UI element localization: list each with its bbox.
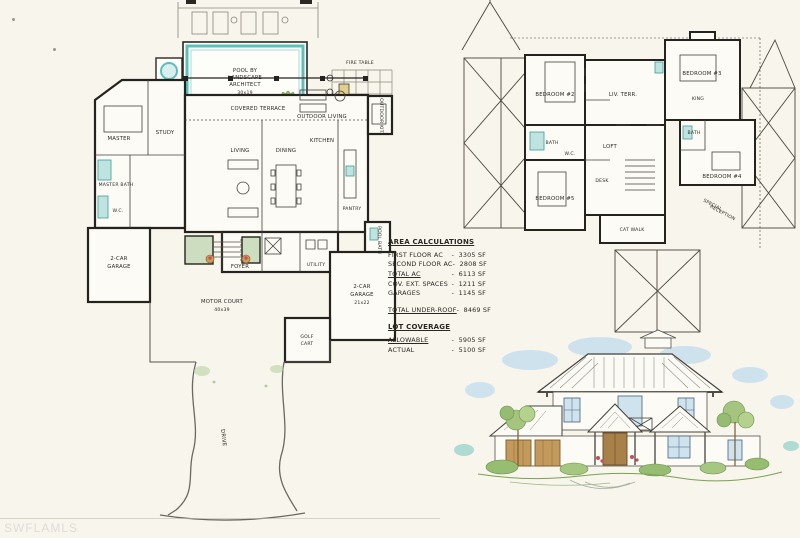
first-floor-plan: POOL BY LANDSCAPE ARCHITECT 30x19 SPA: [0, 0, 400, 538]
row-label: ALLOWABLE: [388, 336, 428, 344]
row-label: GARAGES: [388, 289, 420, 297]
row-label: COV. EXT. SPACES: [388, 280, 448, 288]
loft-label: LOFT: [603, 144, 617, 150]
master-bath-label: MASTER BATH: [99, 182, 134, 188]
king-label: KING: [692, 96, 704, 102]
cupola: [640, 330, 676, 348]
row-label: SECOND FLOOR AC: [388, 260, 453, 268]
wc-label: W.C.: [565, 151, 576, 157]
dining-label: DINING: [276, 148, 296, 154]
pantry-label: PANTRY: [343, 206, 362, 212]
garage-right-dimension: 21x22: [354, 300, 369, 306]
foyer-label: FOYER: [231, 264, 249, 270]
golf-cart-label: CART: [301, 341, 314, 347]
outdoor-living-label: OUTDOOR LIVING: [297, 114, 347, 120]
utility-label: UTILITY: [307, 262, 325, 268]
garage-left-label: GARAGE: [107, 264, 131, 270]
study-label: STUDY: [156, 130, 175, 136]
special-reception-label: RECEPTION: [709, 204, 737, 222]
garage-right-label: GARAGE: [350, 292, 374, 298]
drawing-sheet: POOL BY LANDSCAPE ARCHITECT 30x19 SPA: [0, 0, 800, 538]
desk-label: DESK: [595, 178, 609, 184]
drive-label: DRIVE: [219, 429, 227, 447]
covered-terrace-label: COVERED TERRACE: [231, 106, 286, 112]
row-label: TOTAL UNDER-ROOF: [388, 306, 457, 314]
bedroom4-label: BEDROOM #4: [702, 174, 742, 180]
bath2-label: BATH: [688, 130, 701, 136]
row-label: ACTUAL: [388, 346, 414, 354]
row-label: FIRST FLOOR AC: [388, 251, 443, 259]
bedroom2-label: BEDROOM #2: [535, 92, 574, 98]
pool-label: POOL BY: [233, 68, 258, 74]
living-terrace-label: LIV. TERR.: [609, 92, 637, 98]
garage-left-label: 2-CAR: [110, 256, 127, 262]
bedroom5-label: BEDROOM #5: [535, 196, 574, 202]
pool-deck: [178, 0, 318, 38]
master-label: MASTER: [107, 136, 130, 142]
pool-label: ARCHITECT: [229, 82, 261, 88]
second-floor-plan: BEDROOM #2 BATH W.C. BEDROOM #5 LIV. TER…: [450, 0, 800, 340]
bedroom3-label: BEDROOM #3: [682, 71, 721, 77]
motor-court-label: MOTOR COURT: [201, 299, 244, 305]
garage-door: [535, 440, 560, 466]
front-elevation-rendering: [450, 330, 800, 508]
watermark: SWFLAMLS: [4, 521, 78, 535]
pool-bath-label: POOL BATH: [376, 226, 382, 254]
living-label: LIVING: [231, 148, 250, 154]
golf-cart-label: GOLF: [300, 334, 313, 340]
kitchen-label: KITCHEN: [310, 138, 334, 144]
watermark-rule: [0, 518, 440, 519]
row-label: TOTAL AC: [388, 270, 421, 278]
outdoor-kitchen-label: OUTDOOR KIT.: [378, 98, 384, 134]
garage-right-label: 2-CAR: [353, 284, 370, 290]
bath-label: BATH: [546, 140, 559, 146]
fire-table-label: FIRE TABLE: [346, 60, 374, 66]
motor-court-dimension: 40x39: [214, 307, 229, 313]
wc-label: W.C.: [113, 208, 124, 214]
exterior-walls: [88, 80, 395, 362]
cat-walk-label: CAT WALK: [620, 227, 646, 233]
drive: DRIVE: [160, 362, 305, 520]
